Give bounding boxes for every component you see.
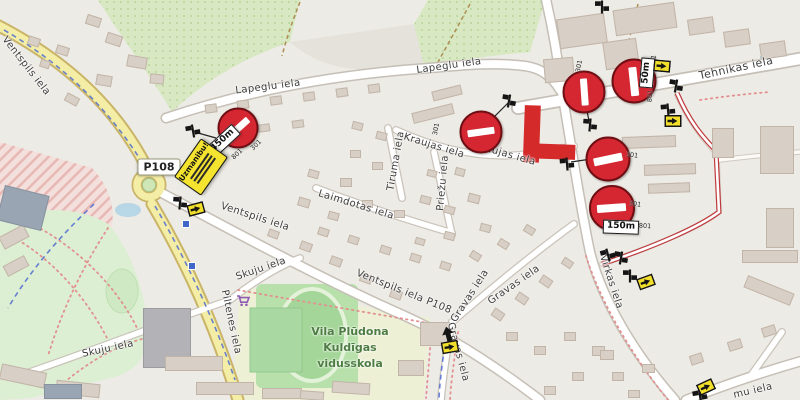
building — [467, 193, 481, 205]
sign-code-label: 801 — [645, 89, 654, 102]
building — [515, 291, 530, 305]
no-entry-sign[interactable] — [460, 111, 503, 154]
street-label-skuju-sw: Skuju iela — [81, 338, 134, 360]
building — [27, 35, 41, 47]
building — [150, 73, 165, 84]
street-label-gravas-n: Gravas iela — [449, 268, 491, 325]
building — [299, 240, 313, 253]
building — [350, 150, 361, 158]
detour-sign-icon[interactable] — [696, 378, 716, 396]
road-ref-badge: P108 — [137, 159, 180, 176]
building — [539, 274, 554, 288]
building — [300, 390, 325, 400]
no-entry-bar — [593, 152, 623, 166]
building — [443, 231, 456, 241]
school-label: Vila Plūdona Kuldīgas vidusskola — [311, 324, 388, 372]
signpost-icon[interactable] — [184, 122, 201, 139]
building — [292, 119, 305, 129]
building — [0, 363, 47, 388]
building — [622, 135, 676, 149]
no-entry-bar — [467, 127, 495, 138]
building — [523, 224, 537, 237]
street-label-lapeglu-w: Lapeglu iela — [235, 78, 301, 97]
building — [297, 197, 311, 209]
building — [439, 260, 452, 271]
building — [491, 307, 506, 321]
street-label-tiruma: Tiruma iela — [385, 130, 406, 191]
building — [329, 255, 343, 268]
street-label-ventspils-s: Ventspils iela P108 — [355, 268, 453, 316]
no-entry-bar — [579, 78, 588, 106]
building — [561, 257, 575, 270]
building — [3, 255, 30, 277]
detour-sign-icon[interactable] — [653, 59, 671, 72]
building — [612, 372, 624, 381]
building — [642, 364, 655, 373]
building — [497, 238, 511, 251]
street-label-skuju-ne: Skuju iela — [234, 255, 287, 282]
building — [340, 178, 352, 187]
building — [64, 92, 81, 107]
sign-code-label: 301 — [431, 122, 441, 136]
no-entry-bar — [629, 67, 640, 96]
building — [55, 44, 70, 57]
building — [126, 54, 148, 69]
building — [335, 87, 348, 98]
building — [431, 85, 463, 102]
building — [644, 163, 696, 176]
building — [761, 324, 777, 338]
distance-plate[interactable]: 150m — [603, 220, 640, 235]
building — [0, 224, 30, 250]
building — [414, 237, 426, 246]
building — [600, 350, 614, 360]
building — [367, 83, 380, 94]
signpost-icon[interactable] — [559, 156, 575, 172]
building — [760, 126, 794, 174]
signpost-icon[interactable] — [172, 195, 188, 211]
building — [204, 103, 217, 114]
bus-stop-icon — [188, 262, 196, 270]
building — [454, 167, 466, 177]
building — [351, 121, 364, 131]
building — [419, 195, 432, 205]
building — [572, 372, 584, 381]
sign-code-label: 301 — [625, 150, 638, 160]
distance-plate[interactable]: 50m — [639, 58, 655, 89]
building — [39, 59, 51, 70]
bus-stop-icon — [182, 220, 190, 228]
no-entry-sign[interactable] — [563, 71, 606, 114]
building — [426, 169, 437, 178]
building — [105, 32, 124, 47]
building — [689, 352, 704, 366]
building — [648, 182, 690, 193]
building — [712, 128, 734, 158]
building — [687, 16, 715, 35]
building — [742, 250, 798, 263]
signpost-icon[interactable] — [623, 269, 638, 284]
building — [564, 332, 576, 341]
street-label-ventspils-c: Ventspils iela — [219, 201, 290, 234]
building — [165, 356, 223, 371]
signpost-icon[interactable] — [582, 117, 598, 133]
detour-sign-icon[interactable] — [636, 273, 656, 290]
building — [556, 13, 608, 49]
detour-sign-icon[interactable] — [186, 201, 206, 217]
detour-sign-icon[interactable] — [665, 115, 682, 127]
building — [44, 384, 82, 399]
building — [409, 252, 422, 263]
supermarket-icon — [236, 295, 250, 307]
map-canvas[interactable]: Ventspils ielaLapeglu ielaLapeglu ielaTe… — [0, 0, 800, 400]
sign-code-label: 801 — [230, 147, 245, 161]
building — [332, 381, 371, 396]
building — [327, 211, 340, 222]
building — [372, 162, 383, 170]
no-entry-sign[interactable] — [586, 137, 631, 182]
building — [479, 223, 492, 233]
street-label-gravas-ne: Gravas iela — [486, 263, 542, 307]
street-label-mu: mu iela — [732, 381, 773, 400]
building — [269, 95, 282, 106]
building — [375, 131, 388, 141]
building — [612, 2, 677, 36]
marker-overlay: Ventspils ielaLapeglu ielaLapeglu ielaTe… — [0, 0, 800, 400]
sign-code-label: 301 — [628, 199, 641, 209]
signpost-icon[interactable] — [595, 0, 610, 15]
building — [0, 185, 50, 231]
street-label-priezu: Priežu iela — [435, 155, 451, 212]
building — [398, 360, 424, 376]
street-label-kraujas-w: Kraujas iela — [402, 132, 466, 161]
signpost-icon[interactable] — [612, 249, 629, 266]
street-label-tehnikas: Tehnikas iela — [698, 54, 775, 82]
building — [411, 103, 454, 124]
no-entry-bar — [597, 203, 627, 213]
signpost-icon[interactable] — [500, 92, 517, 109]
building — [95, 74, 113, 88]
building — [317, 226, 330, 237]
building — [307, 169, 320, 180]
building — [723, 28, 751, 47]
building — [727, 338, 743, 352]
building — [258, 123, 271, 133]
building — [544, 386, 556, 395]
signpost-icon[interactable] — [667, 77, 684, 94]
street-label-lapeglu-e: Lapeglu iela — [416, 56, 482, 76]
sign-code-label: 801 — [639, 222, 652, 230]
building — [743, 275, 794, 306]
building — [196, 382, 254, 395]
building — [506, 332, 518, 341]
building — [469, 250, 483, 263]
building — [379, 244, 392, 255]
building — [628, 390, 640, 398]
building — [766, 208, 794, 248]
building — [302, 91, 315, 102]
building — [534, 346, 546, 355]
building — [347, 234, 360, 245]
building — [85, 14, 102, 28]
building — [262, 388, 302, 399]
